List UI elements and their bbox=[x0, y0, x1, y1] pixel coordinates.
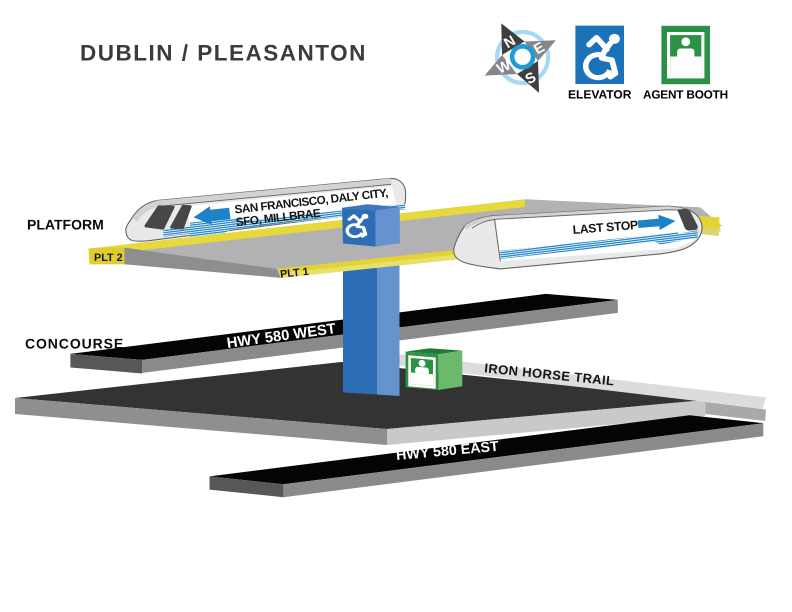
svg-text:ELEVATOR: ELEVATOR bbox=[568, 88, 632, 102]
svg-text:PLT 2: PLT 2 bbox=[94, 252, 123, 264]
svg-text:AGENT BOOTH: AGENT BOOTH bbox=[643, 88, 728, 102]
svg-text:PLATFORM: PLATFORM bbox=[27, 217, 104, 233]
svg-text:DUBLIN / PLEASANTON: DUBLIN / PLEASANTON bbox=[80, 41, 367, 66]
